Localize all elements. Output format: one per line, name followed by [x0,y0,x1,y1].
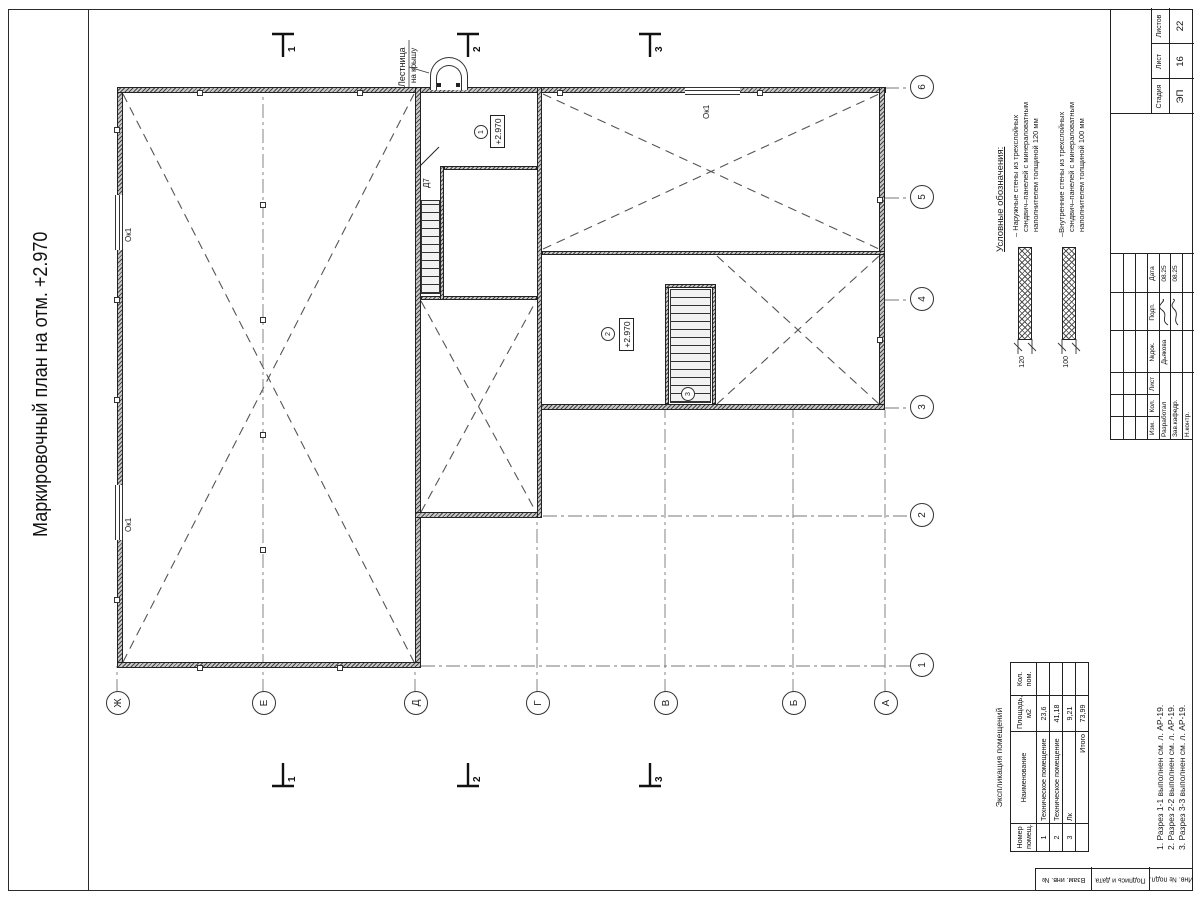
room-1-elevation: +2.970 [490,115,505,148]
panel-joint-mark [197,665,203,671]
axis-letter: Г [533,700,544,705]
axis-bubble-letter: Г [526,691,550,715]
margin-label: Инв. № подл. [1150,876,1194,883]
axis-bubble-number: 4 [910,287,934,311]
axis-number: 1 [917,662,928,668]
axis-bubble-number: 6 [910,75,934,99]
wall-stair2-end [665,284,716,288]
axis-bubble-number: 5 [910,185,934,209]
wall-stair2-bottom [712,284,716,404]
panel-joint-mark [757,90,763,96]
legend-item-2-line-1: –Внутренние стены из трехслойных [1058,112,1066,237]
expl-cell [1076,663,1089,696]
panel-joint-mark [114,397,120,403]
note-line-3: 3. Разрез 3-3 выполнен см. л. АР-19. [1178,705,1187,850]
axis-bubble-letter: Б [782,691,806,715]
margin-label: Взам. инв. № [1042,876,1085,883]
margin-cell-podpis: Подпись и дата [1091,869,1149,890]
panel-joint-mark [114,597,120,603]
wall-stair1-left [421,296,537,300]
expl-cell [1037,663,1050,696]
panel-joint-mark [260,317,266,323]
room-number-3: 3 [681,387,695,401]
legend-title: Условные обозначения: [996,147,1006,252]
section-mark-label-2: 2 [472,776,483,782]
panel-joint-mark [197,90,203,96]
stamp-role-3: Н.контр. [1184,412,1191,437]
drawing-canvas: Маркировочный план на отм. +2.970 [0,0,1200,900]
stamp-role-1: Разработал [1161,402,1168,437]
axis-number: 6 [917,84,928,90]
wall-stair1-right [444,166,537,170]
wall-stair1-partition [440,166,444,300]
margin-cell-vzam: Взам. инв. № [1036,869,1091,890]
window-ok1-top-left [115,485,123,540]
stamp-sheets-header: Листов [1156,8,1163,44]
room-2-elevation: +2.970 [619,318,634,351]
legend-item-1-line-1: – Наружные стены из трехслойных [1012,115,1020,237]
signature-mark [1171,297,1181,327]
stamp-sheets-value: 22 [1175,8,1186,44]
axis-letter: А [881,700,892,707]
window-label: Ок1 [703,105,712,119]
note-line-1: 1. Разрез 1-1 выполнен см. л. АР-19. [1156,705,1165,850]
wall-axis-6-right [117,87,886,93]
section-mark-label-3: 3 [654,776,665,782]
axis-number: 2 [917,512,928,518]
roof-cross-dashes [123,94,879,662]
margin-cells: Взам. инв. № Подпись и дата Инв. № подл. [1035,868,1193,891]
panel-joint-mark [557,90,563,96]
axis-bubble-letter: В [654,691,678,715]
wall-axis-d-mid [415,87,421,668]
axis-number: 4 [917,296,928,302]
expl-header: Площадь, м2 [1011,696,1037,732]
drawing-sheet: Маркировочный план на отм. +2.970 [0,0,1200,900]
legend-dim-120: 120 [1019,356,1027,380]
window-ok1-top-right [115,195,123,250]
panel-joint-mark [260,432,266,438]
axis-letter: В [661,700,672,707]
roof-ladder-label-1: Лестница [398,47,408,87]
expl-cell: 9,21 [1063,696,1076,732]
expl-cell: 3 [1063,824,1076,852]
stamp-date-2: 08.25 [1172,254,1179,293]
expl-header: Наименование [1011,732,1037,824]
legend-item-2-line-2: сэндвич–панелей с минераловатным [1068,102,1076,232]
stamp-col-kol: Кол. [1149,395,1156,417]
stamp-col-data: Дата [1149,254,1156,293]
expl-cell: Итого [1076,732,1089,824]
title-block: Изм. Кол. Лист №док. Подп. Дата Разработ… [1110,9,1193,440]
axis-letter: Б [789,700,800,707]
legend-wall-sample-100 [1062,247,1076,340]
section-flags [272,34,661,786]
expl-cell: 41,18 [1050,696,1063,732]
wall-axis-zh-top [117,87,123,668]
legend-item-1-line-3: наполнителем толщиной 120 мм [1032,118,1040,232]
signature-mark [1160,297,1170,327]
wall-axis-g-mid [537,87,542,518]
roof-ladder-label-2: на крышу [410,48,419,83]
explication-table: Номер помещ. Наименование Площадь, м2 Ко… [1010,662,1089,852]
section-mark-label-1: 1 [287,776,298,782]
room-number-2: 2 [601,327,615,341]
stamp-col-ndok: №док. [1149,331,1156,373]
legend-item-2-line-3: наполнителем толщиной 100 мм [1078,118,1086,232]
axis-bubble-letter: Ж [106,691,130,715]
expl-cell: Лк [1063,732,1076,824]
stamp-role-2: Зав.кафедр. [1172,400,1179,437]
margin-label: Подпись и дата [1095,876,1145,883]
stamp-stage-value: ЭП [1175,79,1186,114]
stamp-name-1: Дьякова [1161,331,1168,373]
axis-number: 3 [917,404,928,410]
stamp-date-1: 08.25 [1161,254,1168,293]
roof-ladder-leg [456,83,460,87]
panel-joint-mark [260,547,266,553]
stair-flight-lower [670,289,711,403]
axis-bubble-number: 1 [910,653,934,677]
explication-title: Экспликация помещений [995,663,1004,852]
expl-cell [1063,663,1076,696]
axis-bubble-number: 3 [910,395,934,419]
panel-joint-mark [877,197,883,203]
expl-cell: 73,99 [1076,696,1089,732]
legend-dim-ticks [1014,339,1080,354]
axis-bubble-letter: Д [404,691,428,715]
axis-letter: Д [411,700,422,707]
wall-partition-45 [542,251,885,255]
roof-ladder-leg [437,83,441,87]
panel-joint-mark [114,297,120,303]
panel-joint-mark [260,202,266,208]
wall-axis-2-step [415,512,542,518]
axis-letter: Ж [113,698,124,707]
axis-bubble-number: 2 [910,503,934,527]
window-label: Ок1 [125,518,134,532]
legend-dim-100: 100 [1063,356,1071,380]
panel-joint-mark [357,90,363,96]
expl-cell: Техническое помещение [1037,732,1050,824]
stamp-col-list: Лист [1149,373,1156,395]
expl-cell [1076,824,1089,852]
section-mark-label-3: 3 [654,46,665,52]
axis-bubble-letter: А [874,691,898,715]
room-number-1: 1 [474,125,488,139]
panel-joint-mark [877,337,883,343]
wall-stair2-top [665,284,669,404]
stamp-col-izm: Изм. [1149,417,1156,439]
stamp-col-podp: Подп. [1149,293,1156,331]
panel-joint-mark [337,665,343,671]
wall-axis-3-left [537,404,885,410]
window-ok1-right [685,87,740,95]
axis-letter: Е [259,700,270,707]
expl-cell: 2 [1050,824,1063,852]
expl-cell: 23,6 [1037,696,1050,732]
axis-bubble-letter: Е [252,691,276,715]
wall-axis-a-bottom [879,87,885,410]
section-mark-label-2: 2 [472,46,483,52]
stamp-sheet-value: 16 [1175,44,1186,79]
legend-item-1-line-2: сэндвич–панелей с минераловатным [1022,102,1030,232]
section-mark-label-1: 1 [287,46,298,52]
expl-cell: Техническое помещение [1050,732,1063,824]
stamp-sheet-header: Лист [1156,44,1163,79]
margin-cell-inv: Инв. № подл. [1149,869,1194,890]
note-line-2: 2. Разрез 2-2 выполнен см. л. АР-19. [1167,705,1176,850]
door-label: Д7 [423,178,432,188]
expl-cell: 1 [1037,824,1050,852]
stamp-stage-header: Стадия [1156,79,1163,114]
expl-header: Номер помещ. [1011,824,1037,852]
window-label: Ок1 [125,228,134,242]
stair-flight-upper [421,200,440,294]
legend-wall-sample-120 [1018,247,1032,340]
panel-joint-mark [114,127,120,133]
axis-number: 5 [917,194,928,200]
wall-axis-1-left [117,662,421,668]
axis-lines [117,88,910,693]
expl-cell [1050,663,1063,696]
expl-header: Кол. пом. [1011,663,1037,696]
